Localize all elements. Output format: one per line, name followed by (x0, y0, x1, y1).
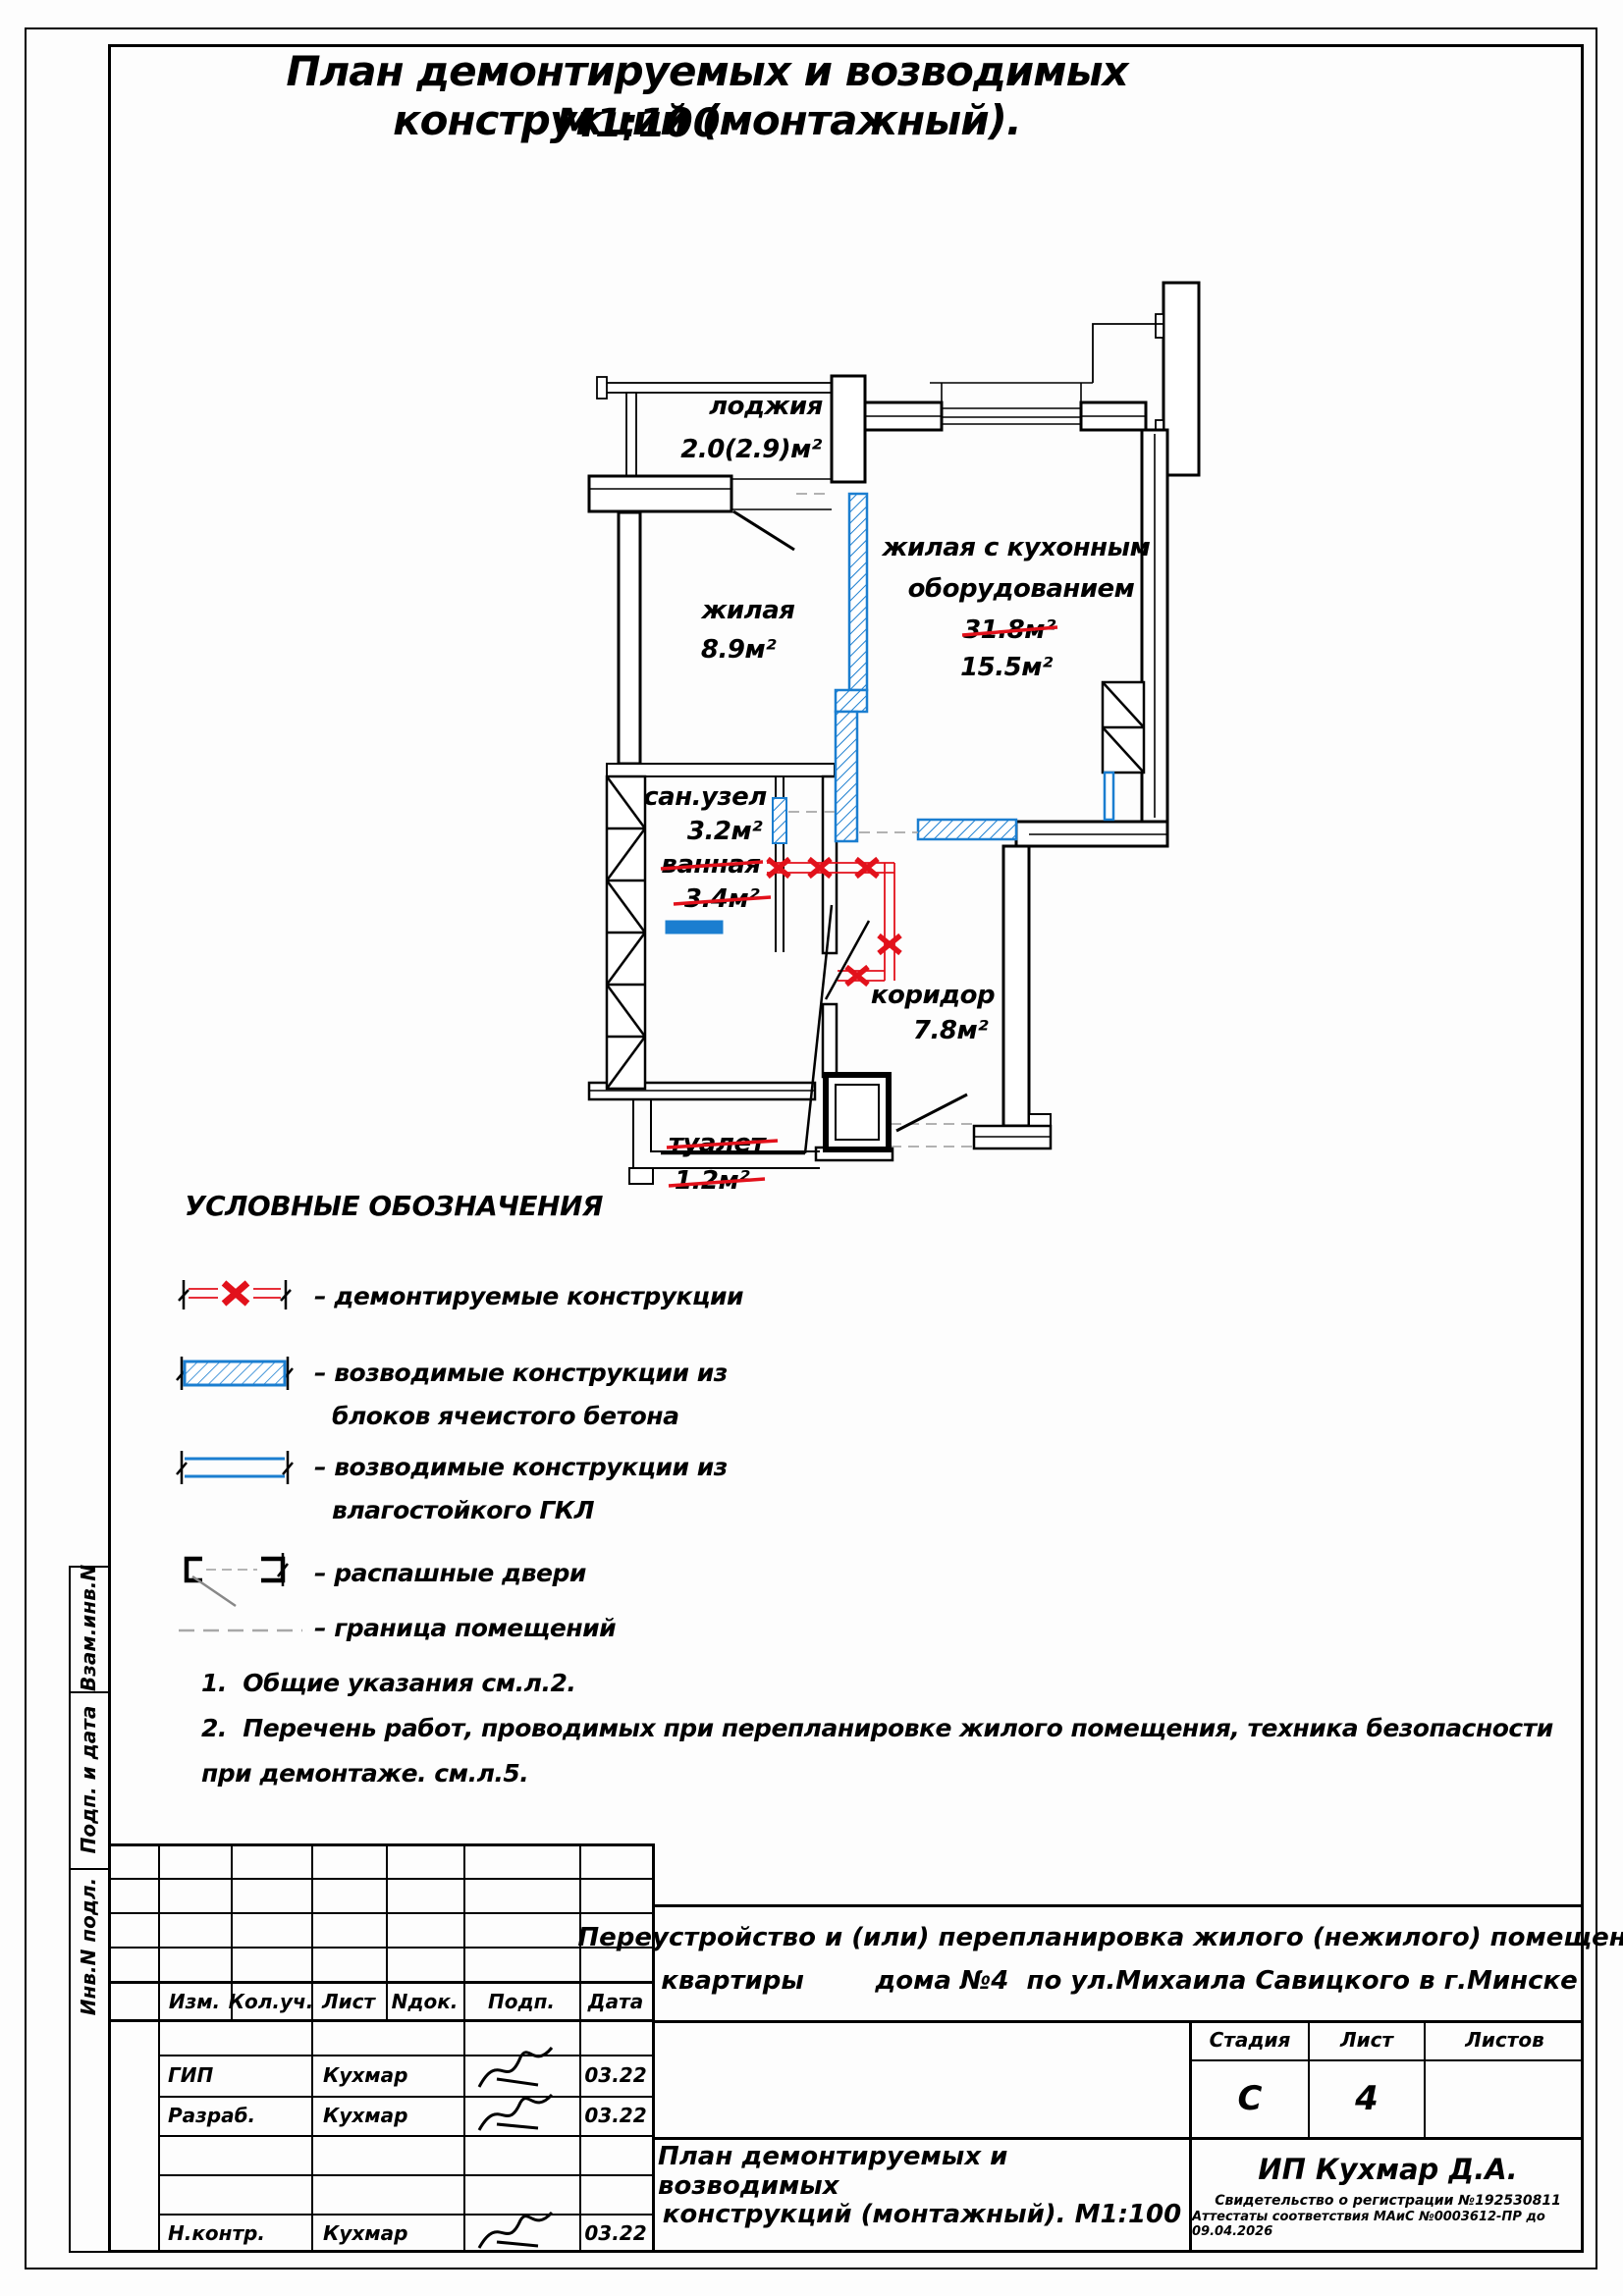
drawing-title-line-1: План демонтируемых и возводимых (658, 2150, 1186, 2193)
col-ndok: Nдок. (386, 1983, 463, 2019)
legend-item-5-label: – граница помещений (314, 1614, 616, 1642)
gkl-wall-symbol (175, 1445, 304, 1490)
legend-item-2-label-1: – возводимые конструкции из (314, 1359, 728, 1387)
side-stamp-column: Взам.инв.N Подп. и дата Инв.N подл. (69, 1566, 108, 2253)
sheets-total-value (1426, 2061, 1584, 2135)
legend-item-3-label-2: влагостойкого ГКЛ (332, 1496, 594, 1524)
legend-item-2-label-2: блоков ячеистого бетона (332, 1402, 678, 1430)
legend-item-3-label-1: – возводимые конструкции из (314, 1453, 728, 1481)
sheet-label: Лист (1310, 2022, 1424, 2057)
note-1: 1. Общие указания см.л.2. (201, 1669, 575, 1697)
living-area: 8.9м² (701, 635, 777, 665)
legend-item-1-label: – демонтируемые конструкции (314, 1282, 743, 1310)
sheet-number-value: 4 (1310, 2061, 1424, 2135)
col-data: Дата (579, 1983, 652, 2019)
sheets-label: Листов (1426, 2022, 1584, 2057)
drawing-sheet: План демонтируемых и возводимых конструк… (0, 0, 1623, 2296)
drawing-title-line-2: конструкций (монтажный). М1:100 (658, 2193, 1186, 2236)
wall-detail-lines (589, 324, 1167, 1168)
entry-door-block (826, 1075, 889, 1149)
vent-shaft-right (1103, 682, 1144, 773)
row-razrab-role: Разраб. (160, 2098, 309, 2133)
vent-shaft-left (607, 776, 645, 1089)
legend-item-4-label: – распашные двери (314, 1559, 586, 1587)
stamp-inv-podl: Инв.N подл. (69, 1868, 108, 2025)
stage-value: С (1192, 2061, 1308, 2135)
project-description-line-1: Переустройство и (или) перепланировка жи… (658, 1914, 1581, 1961)
kitchen-living-new-area: 15.5м² (960, 653, 1054, 682)
demolished-walls-symbol (175, 1272, 304, 1317)
signature-icon (469, 2207, 575, 2256)
row-gip-date: 03.22 (581, 2056, 650, 2094)
loggia-label: лоджия (709, 392, 823, 421)
corridor-area: 7.8м² (913, 1016, 989, 1045)
stamp-vzam-inv: Взам.инв.N (69, 1566, 108, 1691)
note-2: 2. Перечень работ, проводимых при перепл… (201, 1714, 1553, 1742)
row-nkontr-role: Н.контр. (160, 2216, 309, 2251)
row-razrab-name: Кухмар (315, 2098, 461, 2133)
san-uzel-area: 3.2м² (687, 817, 763, 846)
row-nkontr-date: 03.22 (581, 2216, 650, 2251)
col-koluch: Кол.уч. (231, 1983, 311, 2019)
kitchen-living-label-1: жилая с кухонным (882, 533, 1151, 562)
note-3: при демонтаже. см.л.5. (201, 1759, 528, 1788)
signature-icon (469, 2089, 575, 2138)
floor-plan: лоджия 2.0(2.9)м² жилая 8.9м² жилая с ку… (574, 265, 1262, 1212)
room-boundary-symbol (175, 1618, 307, 1643)
row-nkontr-name: Кухмар (315, 2216, 461, 2251)
page-scale: М1:100 (137, 100, 1139, 147)
project-description-line-2: квартиры дома №4 по ул.Михаила Савицкого… (658, 1957, 1581, 2004)
san-uzel-label: сан.узел (643, 782, 767, 812)
kitchen-living-label-2: оборудованием (908, 574, 1135, 604)
swing-doors-symbol (175, 1547, 307, 1612)
row-gip-name: Кухмар (315, 2056, 461, 2094)
row-gip-role: ГИП (160, 2056, 309, 2094)
organization-name: ИП Кухмар Д.А. (1192, 2150, 1584, 2189)
col-izm: Изм. (158, 1983, 231, 2019)
col-list: Лист (311, 1983, 386, 2019)
title-block: Изм. Кол.уч. Лист Nдок. Подп. Дата ГИП К… (108, 1843, 1584, 2253)
corridor-label: коридор (871, 981, 995, 1010)
stamp-podp-data: Подп. и дата (69, 1691, 108, 1868)
organization-cert-2: Аттестаты соответствия МАиС №0003612-ПР … (1192, 2213, 1584, 2236)
stage-label: Стадия (1192, 2022, 1308, 2057)
legend-heading: УСЛОВНЫЕ ОБОЗНАЧЕНИЯ (185, 1190, 603, 1222)
col-podp: Подп. (463, 1983, 579, 2019)
aerated-concrete-symbol (175, 1351, 304, 1396)
living-label: жилая (701, 596, 795, 625)
row-razrab-date: 03.22 (581, 2098, 650, 2133)
loggia-area: 2.0(2.9)м² (680, 435, 823, 464)
